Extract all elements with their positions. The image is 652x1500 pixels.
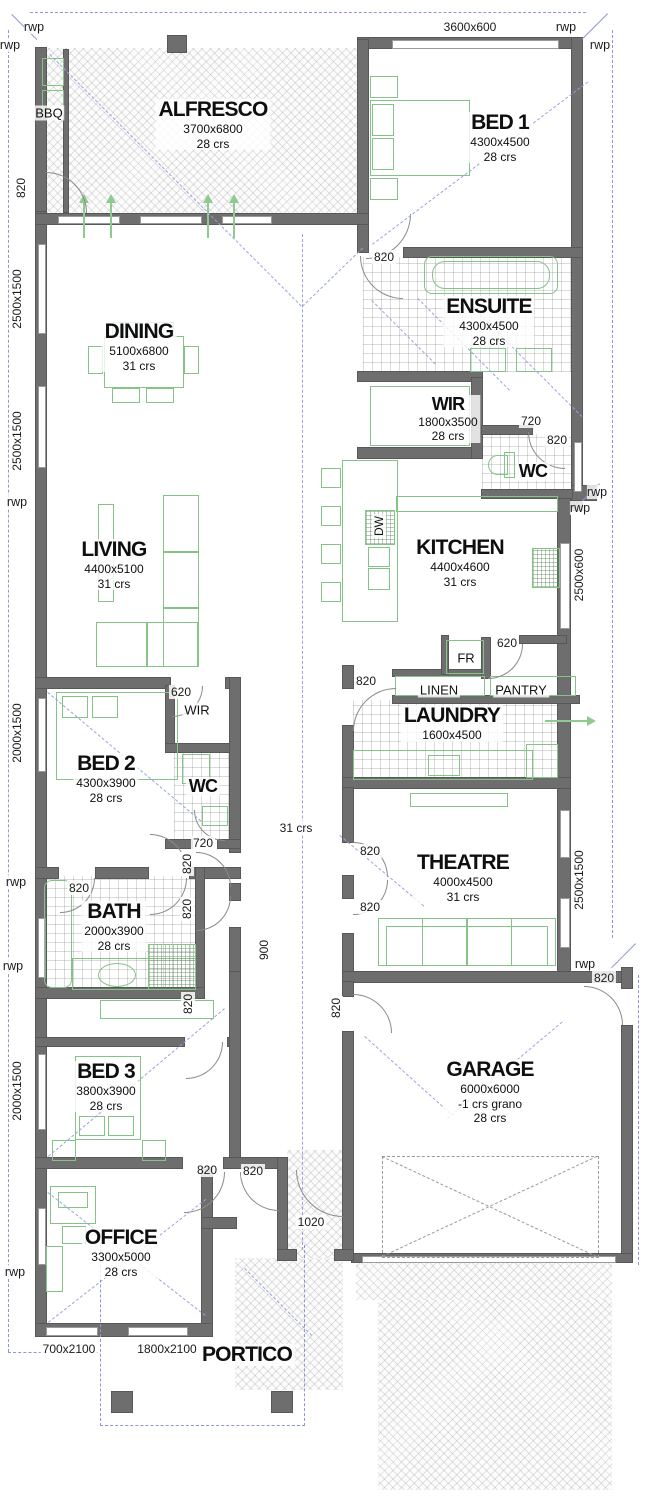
room-dims: 5100x6800 <box>105 345 174 358</box>
room-dims: 4400x4600 <box>416 561 504 574</box>
pillow-symbol <box>108 1116 134 1136</box>
room-label-wir2: WIR <box>182 703 211 718</box>
door-arc <box>196 896 231 931</box>
rwp-label: rwp <box>556 20 576 34</box>
dim-left-window-4: 2000x1500 <box>10 1059 24 1122</box>
arrow-up-icon <box>233 202 235 238</box>
boundary-corner-tick <box>611 943 636 968</box>
dim-laundry-door: 820 <box>354 674 378 688</box>
room-name: BED 2 <box>76 753 135 775</box>
dim-office-window-1: 700x2100 <box>41 1342 98 1356</box>
arrow-right-icon <box>545 720 587 722</box>
window <box>38 244 46 334</box>
wall <box>230 678 240 852</box>
room-crs: 28 crs <box>418 430 477 443</box>
rwp-label: rwp <box>570 501 590 515</box>
bedside-table-symbol <box>370 76 398 98</box>
room-label-bed1: BED 1 4300x4500 28 crs <box>467 112 532 163</box>
room-name: PORTICO <box>202 1344 292 1366</box>
arrow-up-icon <box>229 194 239 203</box>
room-crs: 28 crs <box>84 940 143 953</box>
room-label-dining: DINING 5100x6800 31 crs <box>102 321 177 372</box>
window <box>574 442 582 492</box>
bedside-table-symbol <box>370 178 398 200</box>
room-label-bath: BATH 2000x3900 28 crs <box>81 901 146 952</box>
room-dims: 4300x4500 <box>470 136 529 149</box>
dim-pantry-door: 620 <box>495 636 519 650</box>
door-arc <box>584 986 623 1025</box>
bbq-label: BBQ <box>33 106 64 121</box>
room-label-ensuite: ENSUITE 4300x4500 28 crs <box>443 296 534 347</box>
wall <box>218 840 240 848</box>
room-label-alfresco: ALFRESCO 3700x6800 28 crs <box>155 99 270 150</box>
window <box>392 40 559 49</box>
room-dims: 2000x3900 <box>84 925 143 938</box>
chair-symbol <box>184 346 199 374</box>
room-dims: 1800x3500 <box>418 416 477 429</box>
room-label-wir: WIR 1800x3500 28 crs <box>415 395 480 443</box>
stool-symbol <box>321 582 341 602</box>
linen-label: LINEN <box>418 683 460 698</box>
rwp-label: rwp <box>590 38 610 52</box>
stove-symbol <box>532 548 560 588</box>
room-label-theatre: THEATRE 4000x4500 31 crs <box>414 852 512 903</box>
room-name: WIR <box>418 395 477 414</box>
sofa-symbol <box>146 622 198 667</box>
window <box>560 898 570 948</box>
ceiling-dash-line <box>302 690 303 1250</box>
fridge-label: FR <box>455 651 476 666</box>
wall <box>202 1218 236 1228</box>
rwp-label: rwp <box>5 1265 25 1279</box>
dim-left-window-1: 2500x1500 <box>10 267 24 330</box>
kitchen-bench-symbol <box>396 496 558 512</box>
wall <box>343 982 353 996</box>
room-label-laundry: LAUNDRY 1600x4500 <box>401 705 503 742</box>
boundary-corner-tick <box>582 13 608 39</box>
door-arc <box>353 994 392 1033</box>
room-crs: 31 crs <box>416 576 504 589</box>
sofa-symbol <box>163 551 199 609</box>
stool-symbol <box>321 544 341 564</box>
room-name: THEATRE <box>417 852 509 874</box>
arrow-up-icon <box>203 194 213 203</box>
wall <box>343 726 353 784</box>
wall <box>343 788 353 842</box>
wall <box>36 1038 184 1046</box>
dim-hall-height: 31 crs <box>278 821 315 835</box>
dim-right-window-kitchen: 2500x600 <box>572 547 586 604</box>
wall <box>278 1158 287 1258</box>
room-crs: 31 crs <box>417 891 509 904</box>
room-dims: 3300x5000 <box>85 1251 157 1264</box>
room-label-living: LIVING 4400x5100 31 crs <box>78 539 149 590</box>
dishwasher-label: DW <box>372 514 386 538</box>
wall <box>343 1032 353 1258</box>
bbq-symbol <box>42 58 64 86</box>
driveway-paving <box>356 1262 612 1300</box>
wall <box>230 884 240 900</box>
dim-entry-door: 1020 <box>296 1215 327 1229</box>
sofa-symbol <box>386 926 548 966</box>
room-dims: 4300x3900 <box>76 777 135 790</box>
wall <box>520 636 566 643</box>
room-dims: 1600x4500 <box>404 729 500 742</box>
room-note: -1 crs grano <box>446 1098 533 1111</box>
dim-wc-door: 720 <box>519 414 543 428</box>
room-label-office: OFFICE 3300x5000 28 crs <box>82 1227 160 1278</box>
window <box>38 698 46 772</box>
tv-cabinet-symbol <box>410 793 508 807</box>
door-arc <box>353 688 396 731</box>
dim-bed3-door: 820 <box>195 1163 219 1177</box>
room-name: OFFICE <box>85 1227 157 1249</box>
sofa-symbol <box>96 622 148 667</box>
dim-hall-door-a: 820 <box>180 852 194 876</box>
rwp-label: rwp <box>6 875 26 889</box>
room-dims: 3700x6800 <box>158 123 267 136</box>
arrow-up-icon <box>110 202 112 238</box>
site-boundary <box>638 975 639 1265</box>
pillow-symbol <box>372 138 394 170</box>
site-boundary <box>30 12 586 13</box>
room-name: ALFRESCO <box>158 99 267 121</box>
wall <box>96 868 148 878</box>
dim-theatre-door-a: 820 <box>358 844 382 858</box>
wall <box>622 1026 632 1256</box>
window <box>38 1208 46 1265</box>
room-name: KITCHEN <box>416 537 504 559</box>
room-crs: 28 crs <box>76 1100 135 1113</box>
window <box>38 386 46 468</box>
driveway-paving <box>378 1300 612 1490</box>
rwp-label: rwp <box>0 38 20 52</box>
wall <box>343 876 353 898</box>
door-arc <box>196 852 231 887</box>
door-arc <box>184 1172 225 1213</box>
stool-symbol <box>321 506 341 526</box>
room-name: DINING <box>105 321 174 343</box>
room-dims: 4300x4500 <box>446 320 531 333</box>
room-dims: 4400x5100 <box>81 563 146 576</box>
chair-symbol <box>146 388 174 403</box>
room-name: WC <box>519 462 547 481</box>
wall <box>622 968 632 988</box>
arrow-up-icon <box>207 202 209 238</box>
room-name: ENSUITE <box>446 296 531 318</box>
room-label-wc: WC <box>516 462 550 481</box>
bathtub-symbol <box>432 261 550 289</box>
dim-alfresco-door: 820 <box>14 176 28 200</box>
dim-left-window-3: 2000x1500 <box>10 701 24 764</box>
rwp-label: rwp <box>7 495 27 509</box>
room-label-portico: PORTICO <box>199 1344 295 1366</box>
window <box>38 1054 46 1130</box>
window <box>46 1327 98 1336</box>
dim-hall-width: 900 <box>257 938 271 962</box>
sink-symbol <box>368 547 390 567</box>
wall <box>358 448 482 458</box>
bedside-table-symbol <box>142 1140 166 1161</box>
dim-office-door: 820 <box>241 1164 265 1178</box>
rwp-label: rwp <box>587 485 607 499</box>
room-crs: 28 crs <box>158 138 267 151</box>
wall <box>572 38 582 510</box>
room-name: BED 1 <box>470 112 529 134</box>
site-boundary <box>612 30 613 938</box>
pantry-label: PANTRY <box>493 683 549 698</box>
floor-plan: ALFRESCO 3700x6800 28 crs BED 1 4300x450… <box>0 0 652 1500</box>
dim-wc-window: 820 <box>545 433 569 447</box>
dim-bed1-window: 3600x600 <box>442 20 499 34</box>
room-crs: 28 crs <box>470 151 529 164</box>
window <box>140 216 202 224</box>
roof-dash-line <box>302 248 363 307</box>
rwp-label: rwp <box>24 20 44 34</box>
basin-symbol <box>98 963 136 987</box>
dim-office-window-2: 1800x2100 <box>135 1342 198 1356</box>
dim-hall-door-b: 820 <box>180 897 194 921</box>
dim-garage-rear-door: 820 <box>592 971 616 985</box>
room-label-wc2: WC <box>186 777 220 796</box>
room-label-kitchen: KITCHEN 4400x4600 31 crs <box>413 537 507 588</box>
room-crs: 31 crs <box>81 578 146 591</box>
window <box>560 810 570 858</box>
dim-left-window-2: 2500x1500 <box>10 409 24 472</box>
wall <box>230 928 240 972</box>
wall <box>36 868 58 878</box>
site-boundary <box>8 30 9 1352</box>
room-crs: 28 crs <box>446 1112 533 1125</box>
chair-symbol <box>112 388 140 403</box>
laundry-trough-symbol <box>428 755 460 776</box>
wall <box>358 372 482 381</box>
room-name: BED 3 <box>76 1061 135 1083</box>
robe-symbol <box>100 1000 214 1019</box>
wall <box>335 1250 353 1260</box>
room-crs: 28 crs <box>85 1266 157 1279</box>
dim-right-window-theatre: 2500x1500 <box>572 848 586 911</box>
shower-symbol <box>148 944 196 990</box>
cabinet-symbol <box>46 1246 63 1292</box>
room-label-garage: GARAGE 6000x6000 -1 crs grano 28 crs <box>443 1059 536 1125</box>
room-name: LAUNDRY <box>404 705 500 727</box>
washing-machine-symbol <box>526 744 558 778</box>
arrow-right-icon <box>587 716 596 726</box>
room-name: LIVING <box>81 539 146 561</box>
ceiling-dash-line <box>302 234 303 689</box>
roof-dash-line <box>364 1036 450 1114</box>
room-crs: 28 crs <box>76 792 135 805</box>
monitor-symbol <box>58 1192 88 1208</box>
wall <box>168 36 186 52</box>
sink-symbol <box>368 568 390 590</box>
room-name: WC <box>189 777 217 796</box>
window <box>560 543 570 629</box>
rwp-label: rwp <box>3 959 23 973</box>
room-dims: 4000x4500 <box>417 876 509 889</box>
dim-theatre-door-b: 820 <box>358 900 382 914</box>
dim-wc2-door: 720 <box>191 836 215 850</box>
stool-symbol <box>321 468 341 488</box>
room-name: BATH <box>84 901 143 923</box>
room-label-bed3: BED 3 3800x3900 28 crs <box>73 1061 138 1112</box>
sofa-symbol <box>163 495 199 553</box>
wall <box>343 666 353 688</box>
pillow-symbol <box>92 696 118 718</box>
wall <box>343 972 632 982</box>
room-crs: 31 crs <box>105 360 174 373</box>
dim-bath-door: 820 <box>67 881 91 895</box>
rwp-label: rwp <box>575 957 595 971</box>
wall <box>36 678 170 688</box>
room-label-bed2: BED 2 4300x3900 28 crs <box>73 753 138 804</box>
room-name: GARAGE <box>446 1059 533 1081</box>
room-dims: 3800x3900 <box>76 1085 135 1098</box>
dim-wir2-door: 620 <box>169 685 193 699</box>
dim-garage-hall-door: 820 <box>329 996 343 1020</box>
room-crs: 28 crs <box>446 335 531 348</box>
window <box>222 216 272 224</box>
room-dims: 6000x6000 <box>446 1083 533 1096</box>
wall <box>230 972 240 1158</box>
pillow-symbol <box>372 104 394 136</box>
dim-bed3-hall-door: 820 <box>181 992 195 1016</box>
toilet-symbol <box>504 452 515 478</box>
arrow-up-icon <box>106 194 116 203</box>
dim-ensuite-door: 820 <box>372 250 396 264</box>
door-arc <box>186 1042 223 1079</box>
